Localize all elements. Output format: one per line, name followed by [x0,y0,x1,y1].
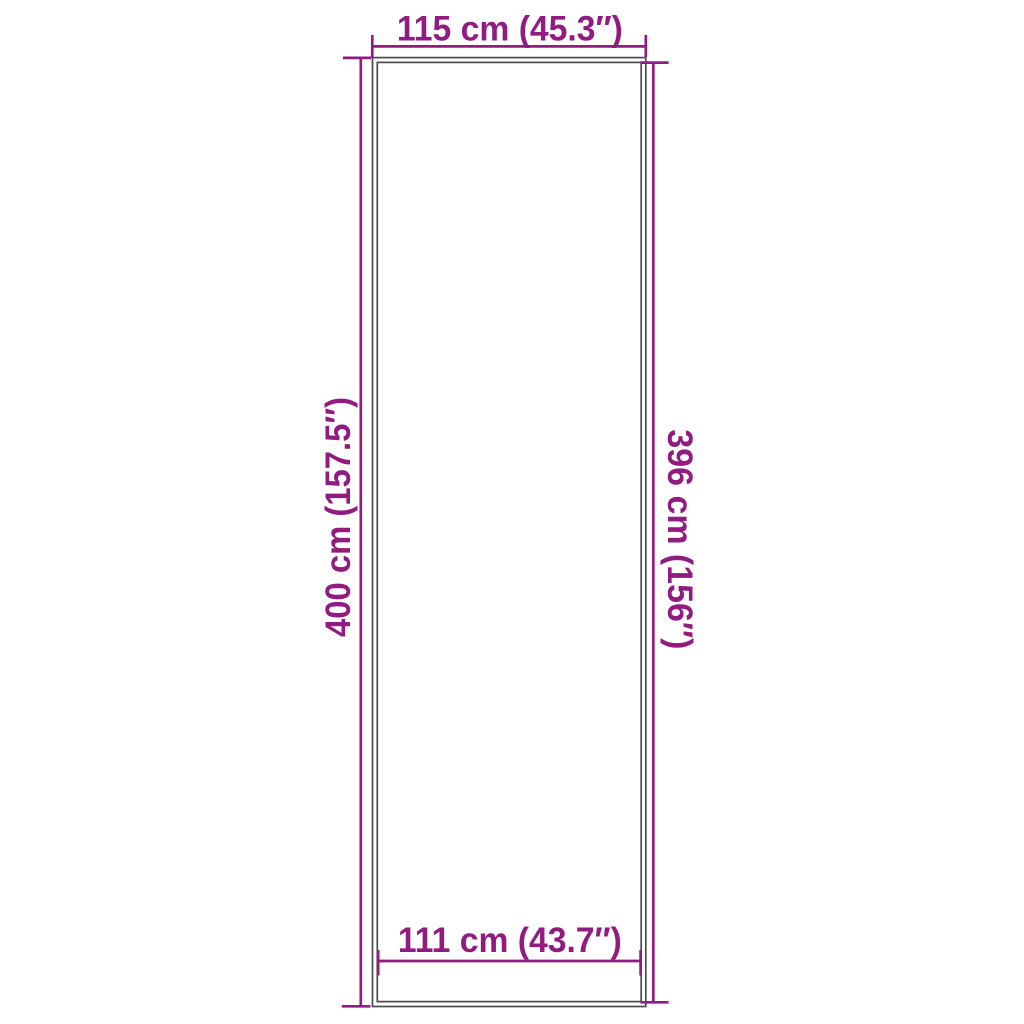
svg-text:400 cm (157.5″): 400 cm (157.5″) [319,397,358,637]
svg-text:396 cm (156″): 396 cm (156″) [660,429,699,649]
svg-text:111 cm (43.7″): 111 cm (43.7″) [398,921,622,960]
svg-text:115 cm (45.3″): 115 cm (45.3″) [397,9,623,48]
